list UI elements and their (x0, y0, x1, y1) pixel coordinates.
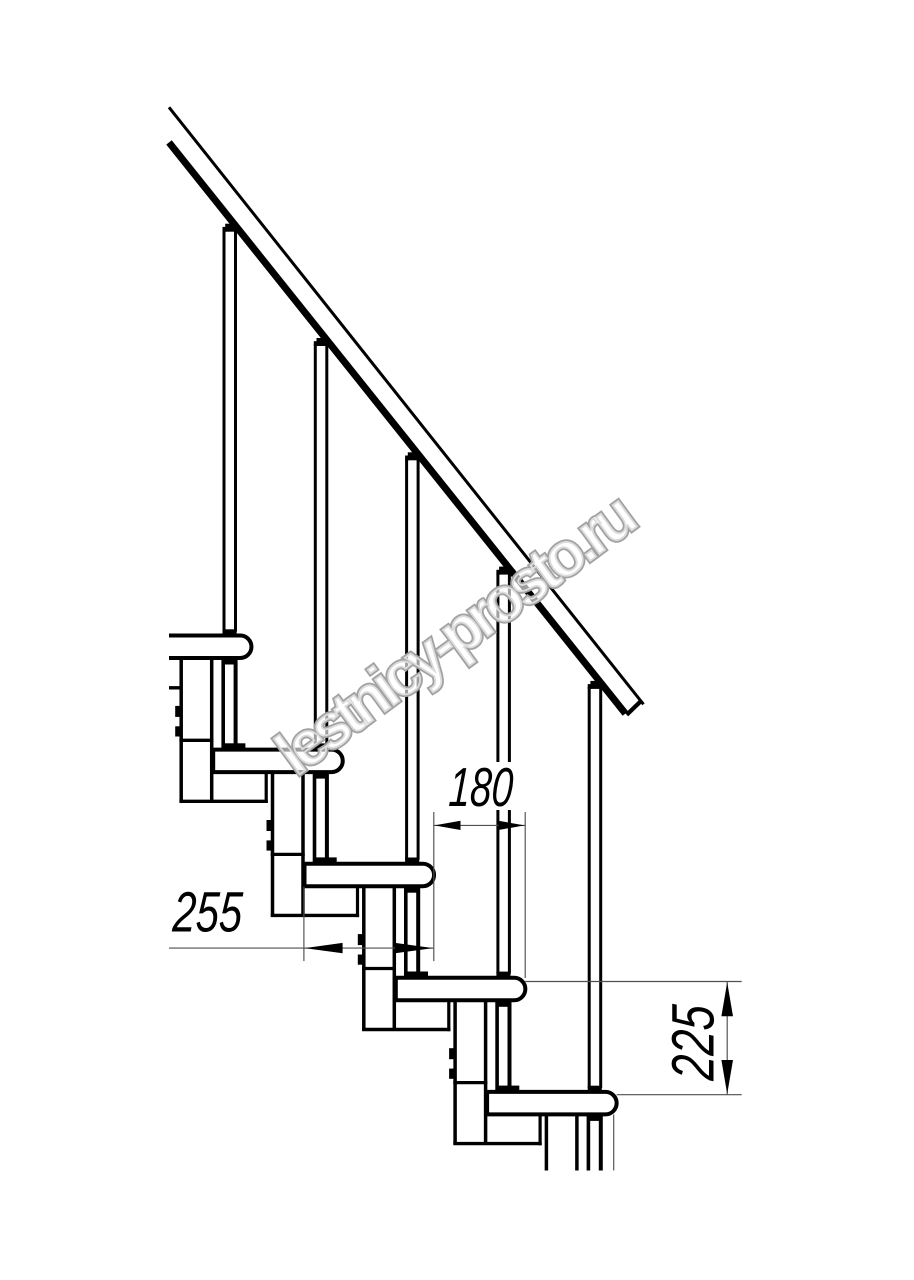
svg-text:255: 255 (171, 880, 245, 944)
svg-text:180: 180 (447, 757, 515, 818)
svg-text:225: 225 (660, 1003, 727, 1083)
